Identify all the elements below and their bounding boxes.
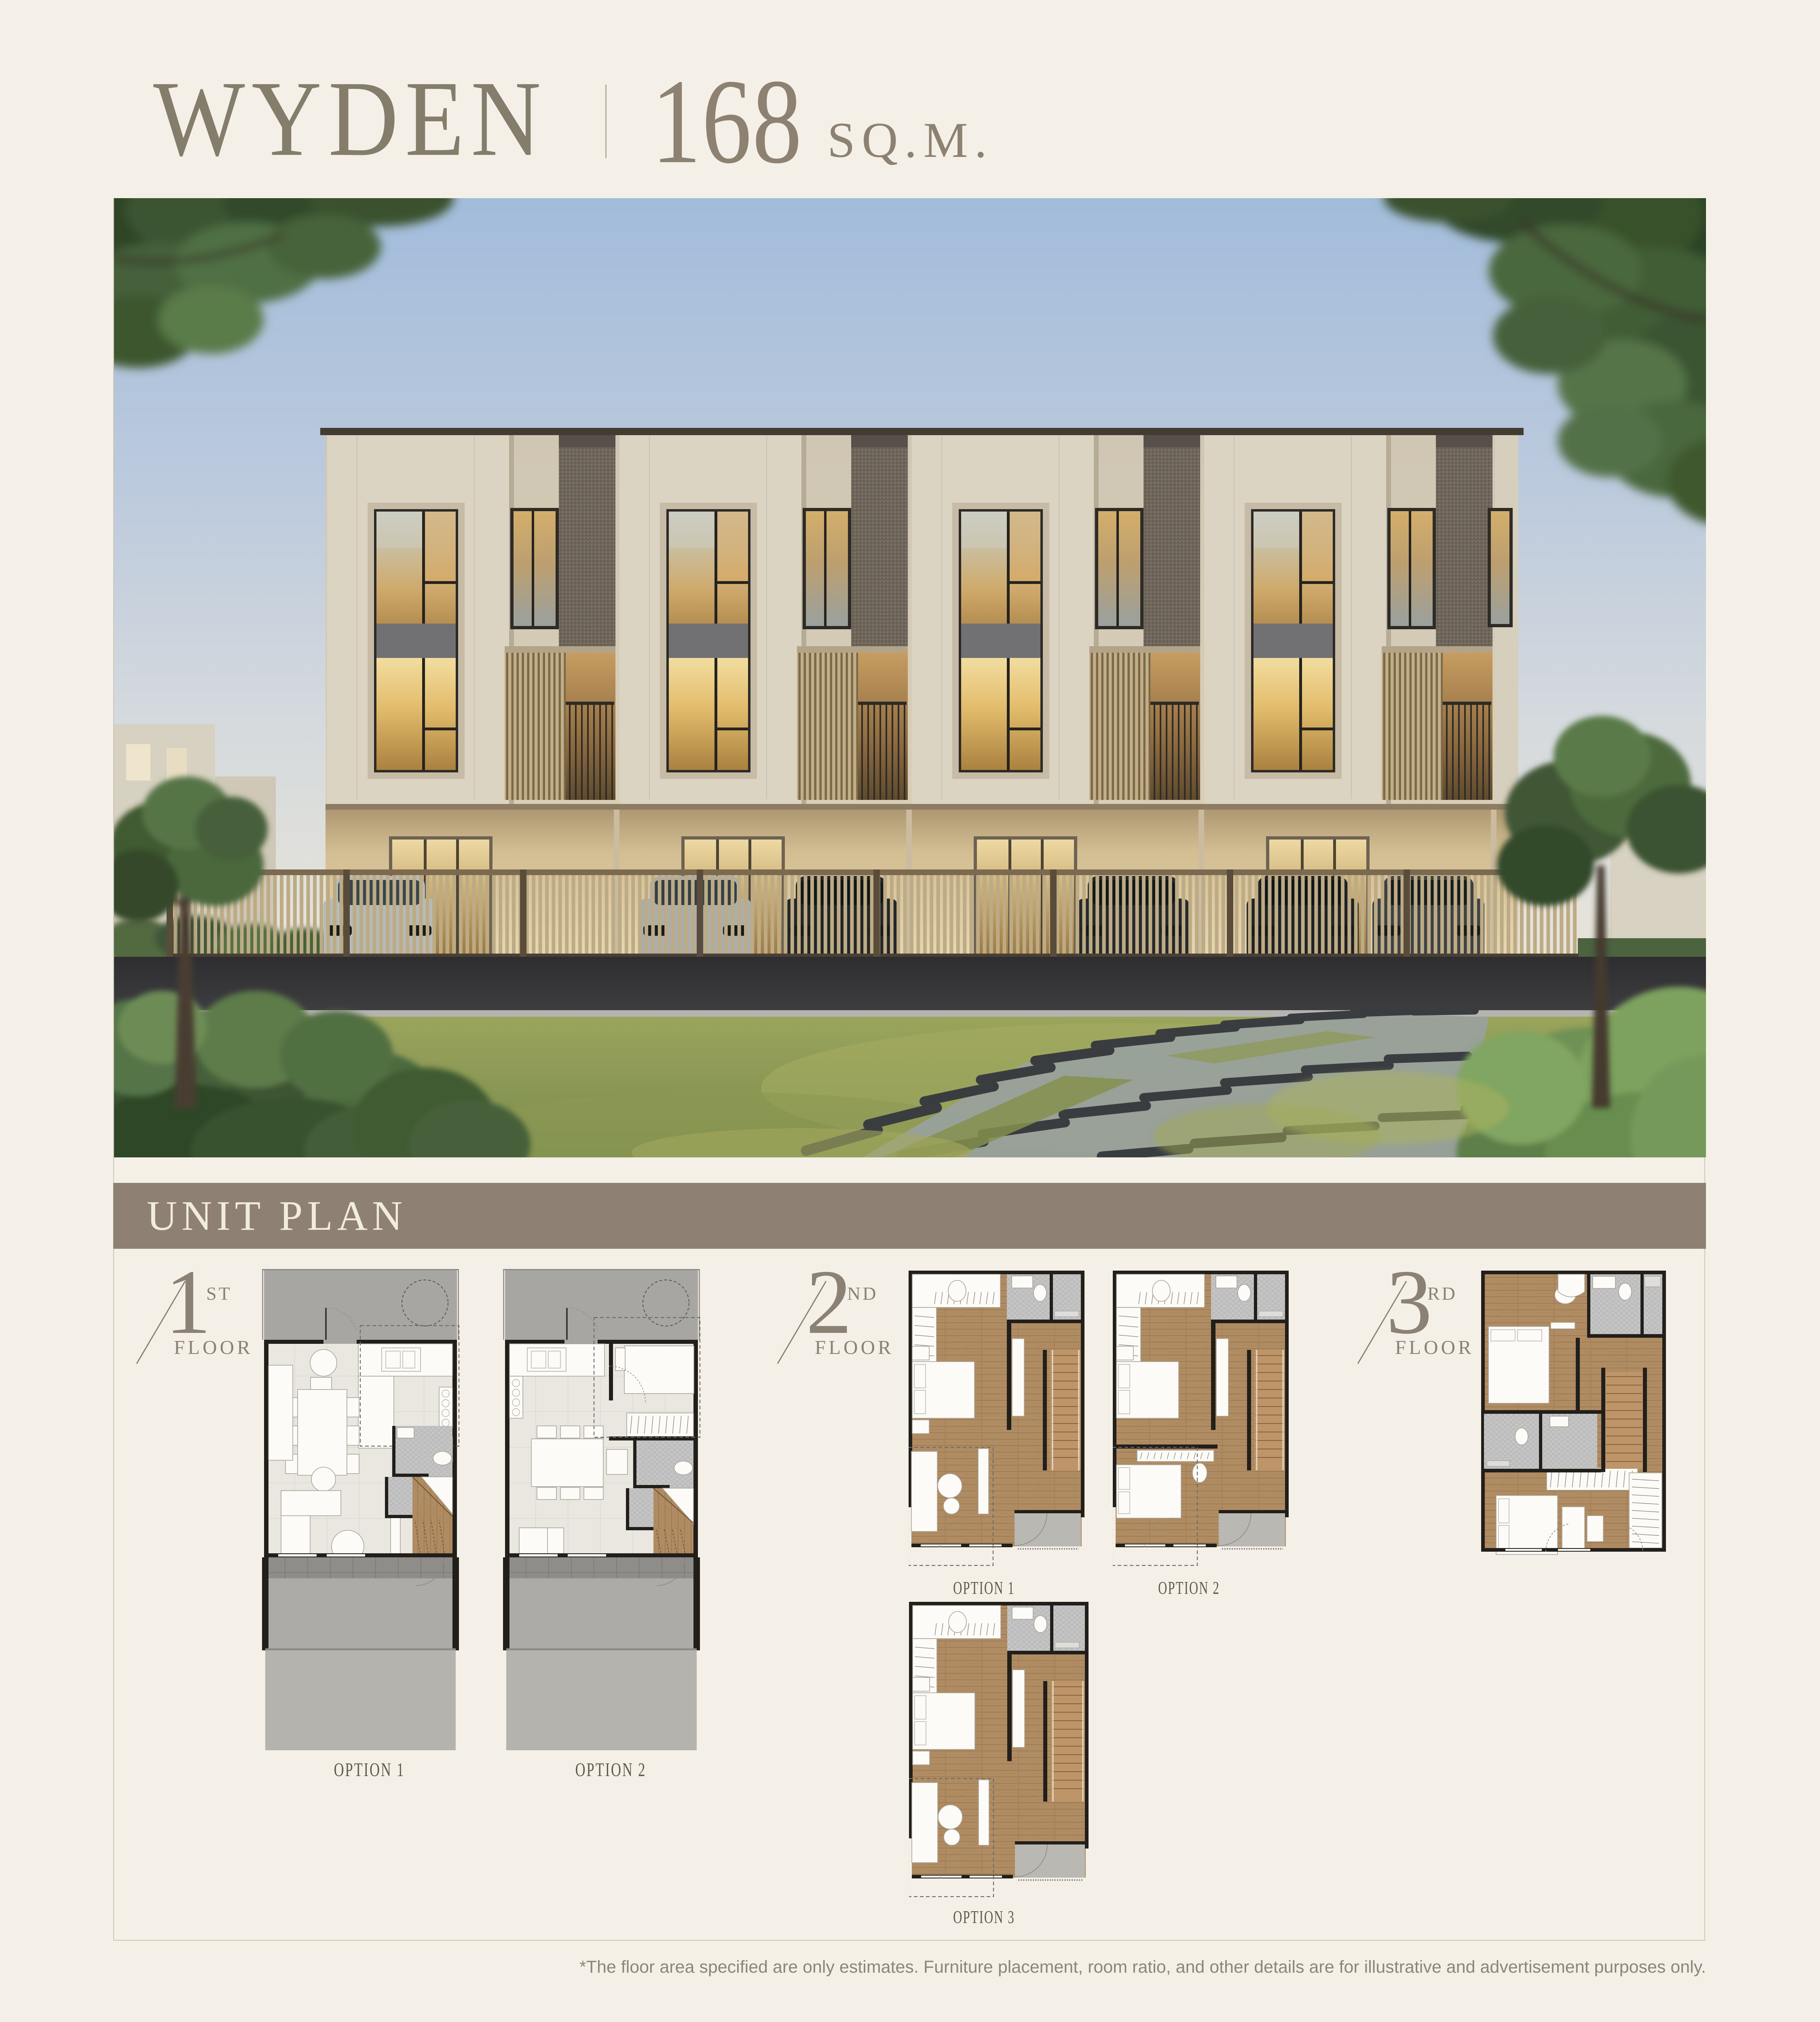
svg-text:FLOOR: FLOOR xyxy=(174,1336,253,1358)
svg-text:ND: ND xyxy=(847,1283,878,1304)
svg-text:RD: RD xyxy=(1427,1283,1457,1304)
svg-text:ST: ST xyxy=(206,1283,232,1304)
svg-text:FLOOR: FLOOR xyxy=(1395,1336,1474,1358)
svg-text:FLOOR: FLOOR xyxy=(815,1336,894,1358)
